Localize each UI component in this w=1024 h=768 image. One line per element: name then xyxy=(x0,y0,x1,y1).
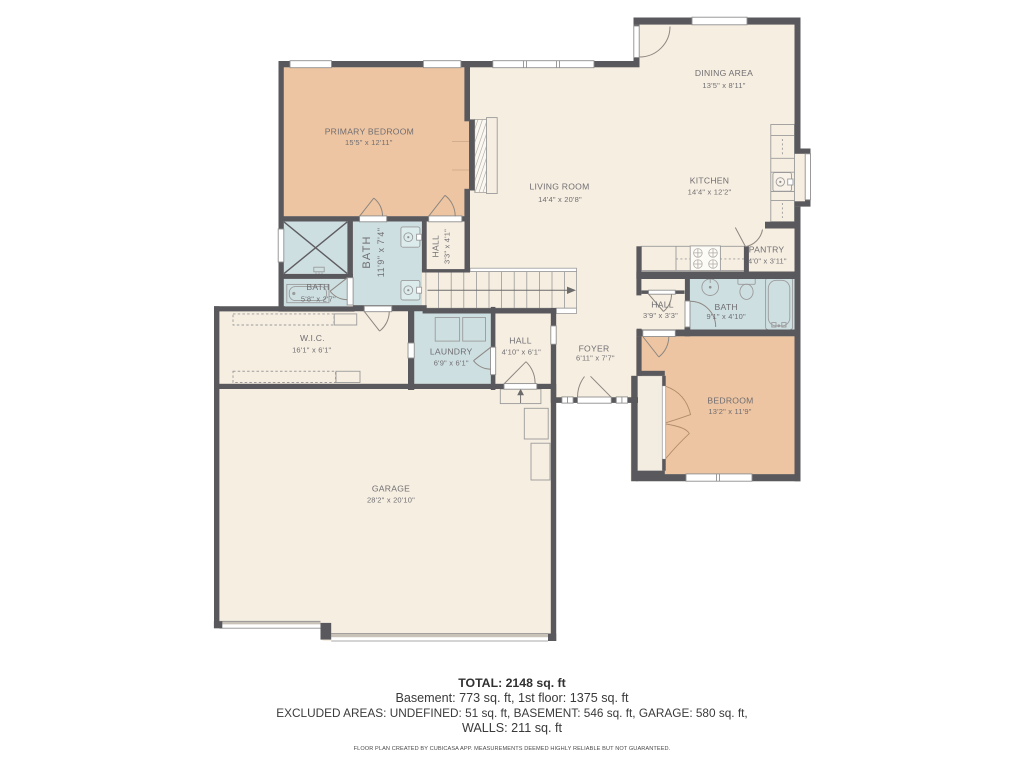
svg-text:EXCLUDED AREAS: UNDEFINED: 51: EXCLUDED AREAS: UNDEFINED: 51 sq. ft, BA… xyxy=(276,706,747,720)
svg-text:BEDROOM: BEDROOM xyxy=(707,396,753,406)
svg-text:3'9" x 3'3": 3'9" x 3'3" xyxy=(643,311,678,320)
svg-text:14'4" x 20'8": 14'4" x 20'8" xyxy=(538,195,582,204)
svg-text:HALL: HALL xyxy=(651,300,674,310)
svg-text:Basement: 773 sq. ft, 1st floo: Basement: 773 sq. ft, 1st floor: 1375 sq… xyxy=(395,691,629,705)
svg-text:DINING AREA: DINING AREA xyxy=(695,68,753,78)
svg-text:16'1" x 6'1": 16'1" x 6'1" xyxy=(292,345,331,354)
svg-text:11'9" x 7'4": 11'9" x 7'4" xyxy=(376,227,386,277)
svg-text:6'9" x 6'1": 6'9" x 6'1" xyxy=(434,359,469,368)
svg-text:3'3" x 4'1": 3'3" x 4'1" xyxy=(442,229,451,264)
svg-text:4'10" x 6'1": 4'10" x 6'1" xyxy=(502,348,541,357)
svg-text:13'2" x 11'9": 13'2" x 11'9" xyxy=(708,407,751,416)
svg-text:FLOOR PLAN CREATED BY CUBICASA: FLOOR PLAN CREATED BY CUBICASA APP. MEAS… xyxy=(354,746,671,752)
svg-text:TOTAL: 2148 sq. ft: TOTAL: 2148 sq. ft xyxy=(458,676,566,690)
svg-text:14'4" x 12'2": 14'4" x 12'2" xyxy=(688,187,732,196)
svg-text:13'5" x 8'11": 13'5" x 8'11" xyxy=(702,81,745,90)
svg-text:PRIMARY BEDROOM: PRIMARY BEDROOM xyxy=(325,126,414,136)
svg-text:HALL: HALL xyxy=(431,235,441,258)
svg-text:FOYER: FOYER xyxy=(579,343,610,353)
svg-text:GARAGE: GARAGE xyxy=(372,484,410,494)
svg-text:BATH: BATH xyxy=(715,302,738,312)
svg-text:BATH: BATH xyxy=(306,282,329,292)
svg-text:HALL: HALL xyxy=(509,335,532,345)
svg-text:15'5" x 12'11": 15'5" x 12'11" xyxy=(345,138,393,147)
svg-text:6'11" x 7'7": 6'11" x 7'7" xyxy=(576,354,615,363)
svg-text:5'8" x 2'7": 5'8" x 2'7" xyxy=(301,295,336,304)
svg-text:W.I.C.: W.I.C. xyxy=(300,333,325,343)
svg-text:9'1" x 4'10": 9'1" x 4'10" xyxy=(707,312,746,321)
svg-text:28'2" x 20'10": 28'2" x 20'10" xyxy=(367,496,415,505)
svg-text:KITCHEN: KITCHEN xyxy=(690,176,729,186)
svg-text:4'0" x 3'11": 4'0" x 3'11" xyxy=(748,257,787,266)
svg-text:LIVING ROOM: LIVING ROOM xyxy=(529,181,589,191)
svg-text:PANTRY: PANTRY xyxy=(749,245,785,255)
svg-text:LAUNDRY: LAUNDRY xyxy=(430,347,473,357)
svg-text:WALLS: 211 sq. ft: WALLS: 211 sq. ft xyxy=(462,721,563,735)
svg-text:BATH: BATH xyxy=(361,235,373,268)
